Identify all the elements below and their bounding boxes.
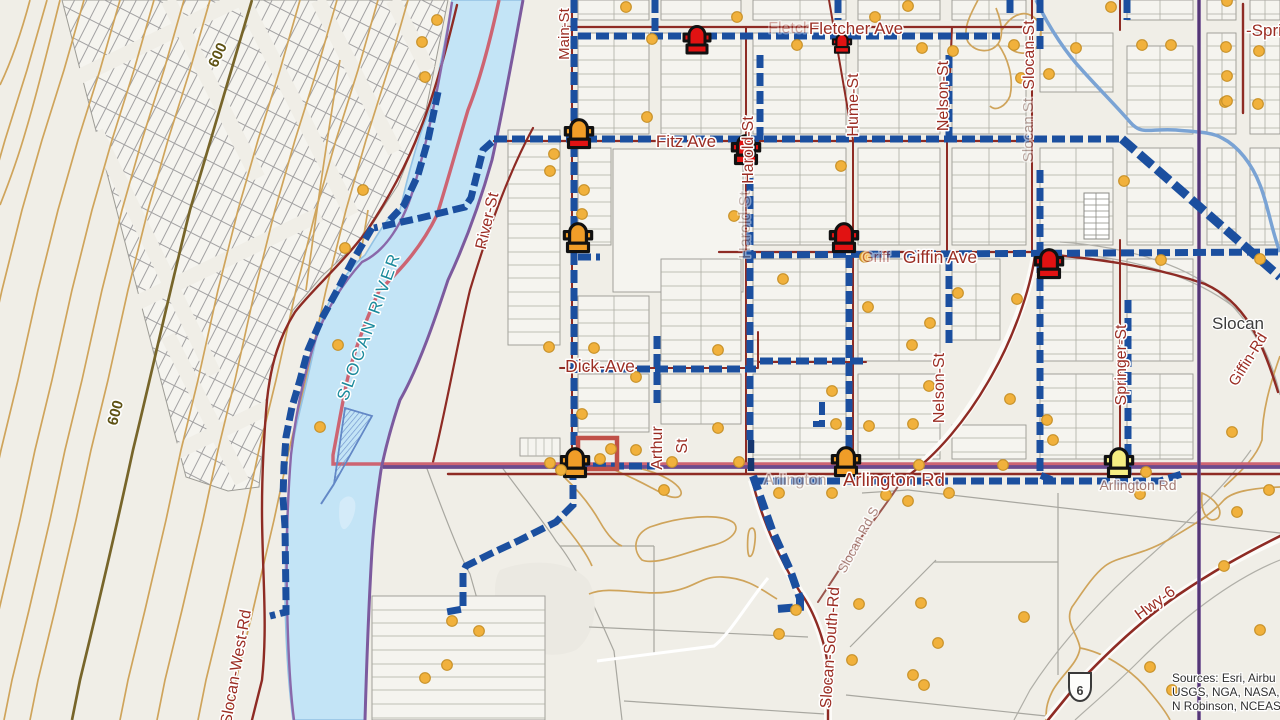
svg-text:Nelson-St: Nelson-St [931, 352, 948, 423]
svg-text:-Spri: -Spri [1246, 21, 1280, 40]
svg-text:Sources: Esri, Airbu: Sources: Esri, Airbu [1172, 671, 1276, 685]
svg-text:Dick-Ave: Dick-Ave [565, 356, 635, 376]
svg-text:Nelson-St: Nelson-St [935, 60, 952, 131]
svg-text:Arthur: Arthur [649, 426, 666, 470]
svg-text:Giffin Ave: Giffin Ave [903, 247, 977, 267]
svg-text:Arlington: Arlington [763, 472, 826, 489]
svg-text:Main-St: Main-St [556, 7, 573, 60]
svg-text:Griff: Griff [862, 249, 891, 266]
svg-text:Arlington Rd: Arlington Rd [1099, 477, 1176, 493]
svg-text:Harold-St: Harold-St [740, 116, 757, 184]
svg-text:Springer-St: Springer-St [1113, 324, 1130, 405]
svg-text:N Robinson, NCEAS: N Robinson, NCEAS [1172, 699, 1280, 713]
svg-text:Slocan-St: Slocan-St [1021, 20, 1038, 90]
svg-text:Slocan St: Slocan St [1020, 97, 1037, 162]
svg-text:Hume-St: Hume-St [845, 73, 862, 137]
svg-text:Fletch: Fletch [768, 20, 812, 37]
svg-text:Fitz Ave: Fitz Ave [656, 132, 716, 151]
svg-text:Harold-St: Harold-St [737, 191, 754, 259]
svg-text:6: 6 [1077, 684, 1084, 698]
svg-text:USGS, NGA, NASA,: USGS, NGA, NASA, [1172, 685, 1280, 699]
svg-text:St: St [674, 438, 691, 454]
svg-text:Fletcher Ave: Fletcher Ave [809, 19, 903, 38]
svg-text:Arlington Rd: Arlington Rd [843, 469, 945, 490]
